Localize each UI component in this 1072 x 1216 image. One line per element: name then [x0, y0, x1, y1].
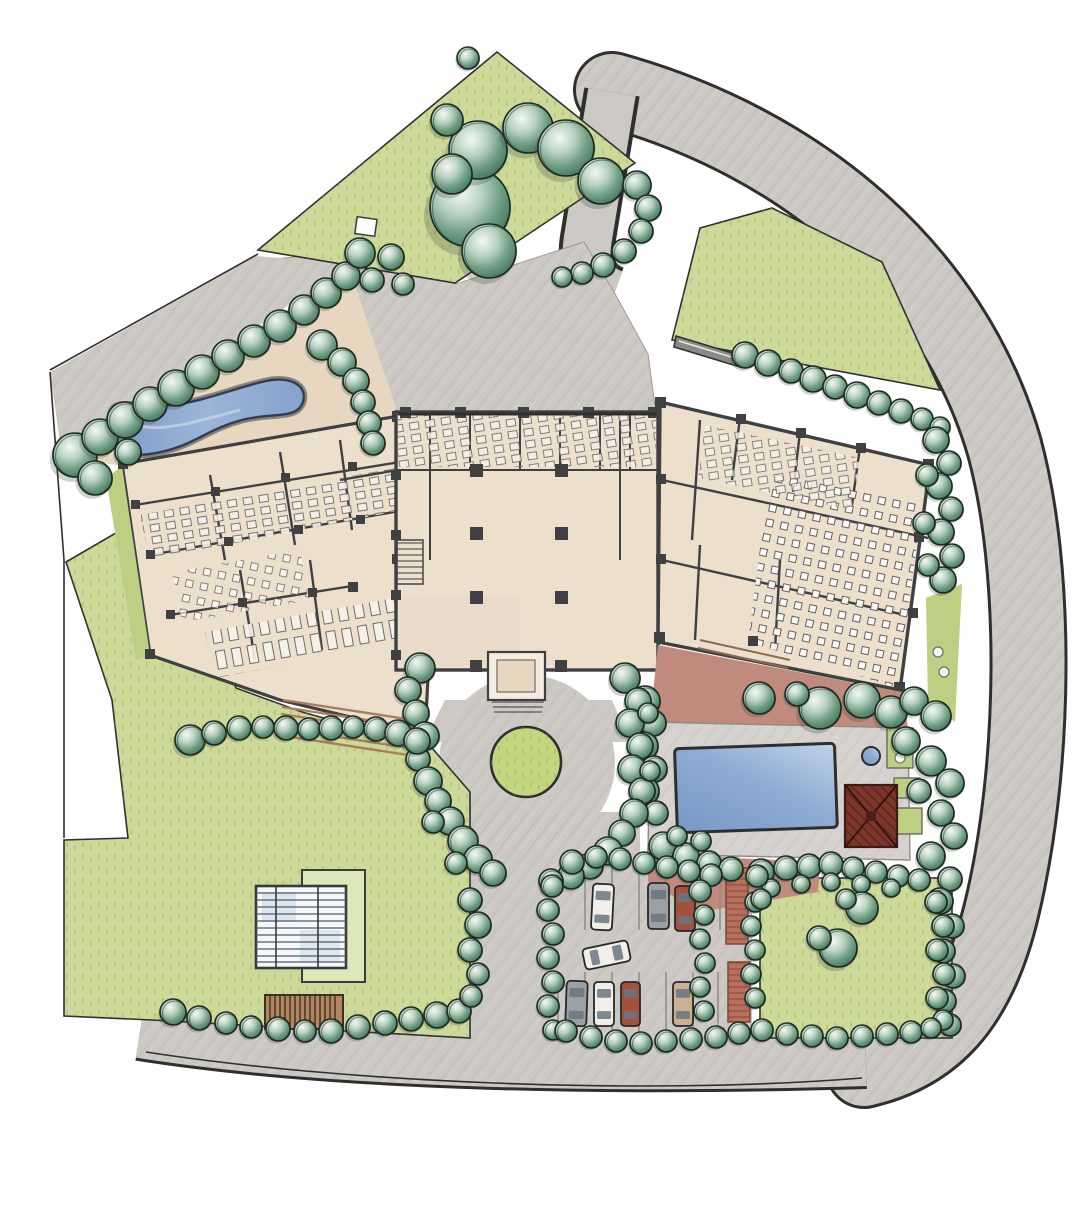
stairs [397, 540, 423, 584]
car [591, 883, 614, 930]
greenhouse [256, 870, 365, 982]
small-shed [355, 217, 377, 237]
spa-tub [862, 747, 880, 765]
site-plan-page [0, 0, 1072, 1216]
car [621, 982, 640, 1026]
swimming-pool [675, 743, 838, 833]
car [648, 883, 669, 929]
forecourt-island [491, 727, 561, 797]
pool-pavilion [845, 785, 897, 847]
site-plan-drawing [0, 0, 1072, 1216]
car [594, 982, 614, 1026]
